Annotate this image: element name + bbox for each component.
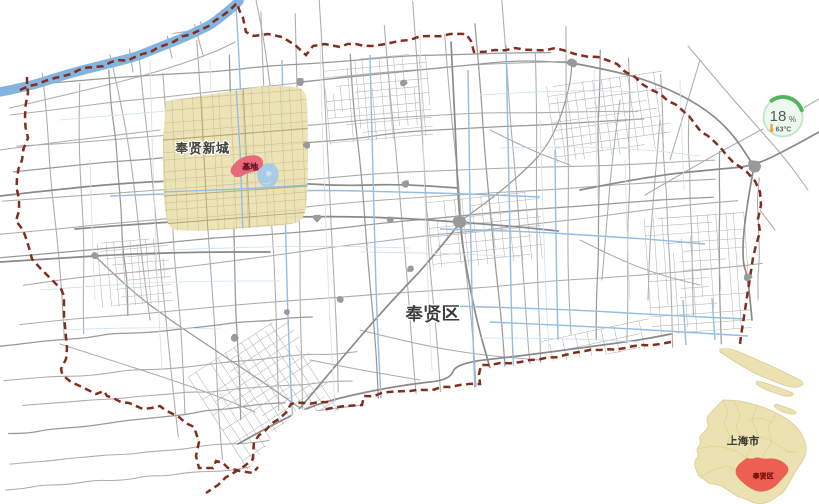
svg-text:63°C: 63°C — [776, 126, 792, 134]
svg-text:%: % — [789, 115, 796, 124]
svg-text:18: 18 — [770, 108, 787, 125]
